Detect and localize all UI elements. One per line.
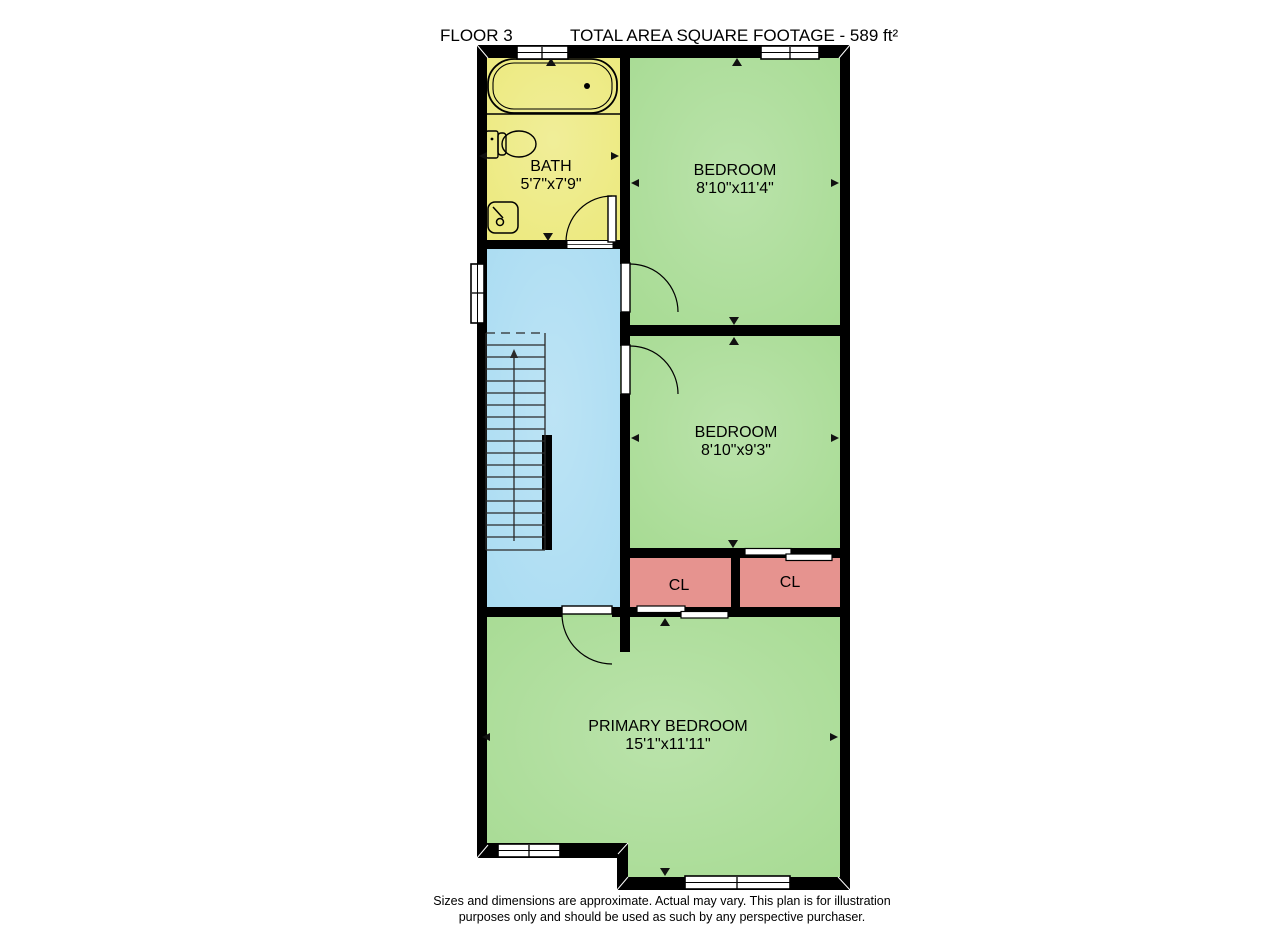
bedroom-middle-dimensions: 8'10"x9'3" <box>701 442 771 459</box>
bath-dimensions: 5'7"x7'9" <box>520 176 581 193</box>
bathtub-drain <box>584 83 590 89</box>
toilet-button <box>491 138 494 141</box>
sheen-hall <box>487 249 620 607</box>
floor-plan-page: FLOOR 3 TOTAL AREA SQUARE FOOTAGE - 589 … <box>0 0 1280 943</box>
door-leaf <box>562 606 612 614</box>
wall-segment <box>542 435 552 550</box>
window-hall-left <box>471 264 484 323</box>
sliding-door-panel <box>786 554 832 561</box>
sliding-door-panel <box>681 612 728 619</box>
wall-segment <box>731 558 740 607</box>
window-top-bath <box>517 46 568 59</box>
bath-label: BATH <box>530 158 571 175</box>
bedroom-top-dimensions: 8'10"x11'4" <box>696 180 774 197</box>
disclaimer-line-2: purposes only and should be used as such… <box>459 910 866 924</box>
window-primary-bottom-left <box>498 844 560 857</box>
sliding-door-panel <box>637 606 685 613</box>
wall-segment <box>840 45 850 890</box>
closet-right-label: CL <box>780 574 801 591</box>
window-top-bedroom <box>761 46 819 59</box>
total-area-label: TOTAL AREA SQUARE FOOTAGE - 589 ft² <box>570 26 898 45</box>
floor-plan-canvas: FLOOR 3 TOTAL AREA SQUARE FOOTAGE - 589 … <box>0 0 1280 943</box>
floor-label: FLOOR 3 <box>440 26 513 45</box>
closet-left-label: CL <box>669 577 690 594</box>
wall-segment <box>620 58 630 264</box>
bedroom-middle-label: BEDROOM <box>695 424 778 441</box>
bedroom-top-label: BEDROOM <box>694 162 777 179</box>
disclaimer-line-1: Sizes and dimensions are approximate. Ac… <box>433 894 890 908</box>
window-primary-bottom-right <box>685 876 790 889</box>
primary-bedroom-label: PRIMARY BEDROOM <box>588 718 747 735</box>
footer-disclaimer: Sizes and dimensions are approximate. Ac… <box>433 894 890 924</box>
wall-segment <box>477 240 567 249</box>
door-leaf <box>621 345 630 394</box>
sliding-door-panel <box>745 549 791 556</box>
wall-segment <box>620 325 850 336</box>
door-leaf <box>621 263 630 312</box>
header: FLOOR 3 TOTAL AREA SQUARE FOOTAGE - 589 … <box>440 26 898 45</box>
primary-bedroom-dimensions: 15'1"x11'11" <box>625 736 710 753</box>
door-leaf <box>608 196 616 242</box>
wall-segment <box>477 607 562 617</box>
sheen-bath <box>487 58 620 240</box>
